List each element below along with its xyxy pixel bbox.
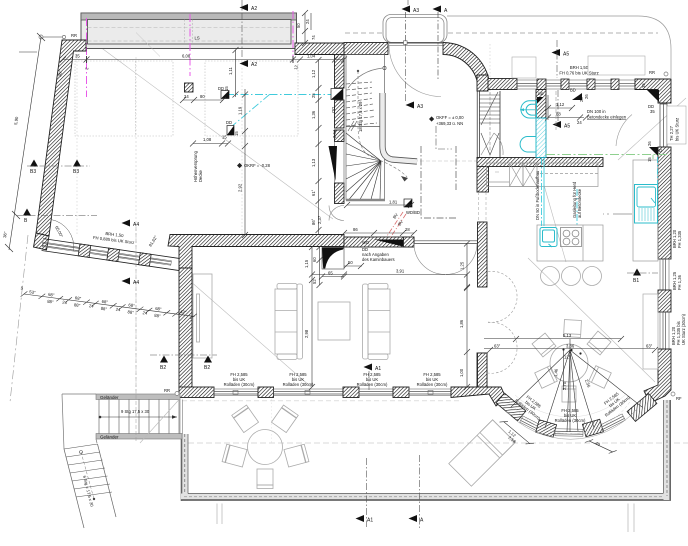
svg-text:1,13: 1,13 <box>311 158 316 167</box>
svg-text:1,86: 1,86 <box>459 319 464 328</box>
svg-text:Geländer: Geländer <box>100 395 119 400</box>
svg-text:12°: 12° <box>564 355 571 360</box>
svg-text:A4: A4 <box>133 280 139 286</box>
svg-text:2,37: 2,37 <box>317 215 322 224</box>
svg-text:A3: A3 <box>413 8 419 14</box>
svg-text:A3: A3 <box>417 104 423 110</box>
svg-text:2,70: 2,70 <box>562 381 567 390</box>
svg-text:RR: RR <box>649 70 655 75</box>
svg-text:35: 35 <box>641 83 646 88</box>
svg-text:B2: B2 <box>160 365 166 371</box>
svg-text:1,04: 1,04 <box>307 54 316 59</box>
svg-text:A5: A5 <box>563 52 569 58</box>
svg-text:BRH 1,50: BRH 1,50 <box>570 65 589 70</box>
svg-text:DN 100 in: DN 100 in <box>587 109 606 114</box>
svg-text:A2: A2 <box>251 62 257 68</box>
svg-text:1,12: 1,12 <box>311 69 316 78</box>
svg-text:28: 28 <box>405 227 410 232</box>
svg-text:18 Stg 17,5 x 29: 18 Stg 17,5 x 29 <box>358 101 363 132</box>
svg-text:80: 80 <box>200 94 205 99</box>
svg-text:OKRF = -0,28: OKRF = -0,28 <box>244 163 271 168</box>
svg-text:OKFF = ± 0,00: OKFF = ± 0,00 <box>436 115 464 120</box>
svg-text:88: 88 <box>556 112 561 117</box>
svg-text:15: 15 <box>647 157 652 162</box>
svg-text:+369,33 ü. NN: +369,33 ü. NN <box>436 121 463 126</box>
svg-text:24: 24 <box>577 120 582 125</box>
svg-text:68°: 68° <box>48 292 55 298</box>
svg-text:65: 65 <box>328 271 333 276</box>
svg-text:68°: 68° <box>128 302 135 308</box>
svg-text:88°: 88° <box>127 309 134 315</box>
svg-text:auf Betondecke: auf Betondecke <box>577 188 582 218</box>
svg-text:RF: RF <box>676 396 682 401</box>
svg-text:86: 86 <box>353 227 358 232</box>
svg-text:68°: 68° <box>75 295 82 301</box>
svg-text:50: 50 <box>296 23 301 28</box>
svg-text:1,36: 1,36 <box>311 110 316 119</box>
svg-text:1,46: 1,46 <box>553 368 559 377</box>
svg-text:bis UK Sturz: bis UK Sturz <box>675 118 680 141</box>
svg-text:DD: DD <box>656 148 662 153</box>
svg-text:1,19: 1,19 <box>238 106 243 115</box>
svg-text:B3: B3 <box>73 169 79 175</box>
svg-text:LS: LS <box>195 36 200 41</box>
svg-text:86°: 86° <box>311 218 316 225</box>
svg-text:60: 60 <box>312 257 317 262</box>
svg-text:1,08: 1,08 <box>203 137 212 142</box>
svg-text:FH 1,36: FH 1,36 <box>677 274 682 290</box>
svg-text:2,64: 2,64 <box>332 129 337 138</box>
svg-text:74: 74 <box>311 35 316 40</box>
svg-text:Rolläden (30cm): Rolläden (30cm) <box>283 382 314 387</box>
svg-text:A2: A2 <box>251 6 257 12</box>
svg-text:88°: 88° <box>154 313 161 319</box>
svg-text:25: 25 <box>311 93 316 98</box>
svg-text:88°: 88° <box>100 306 107 312</box>
svg-text:35: 35 <box>650 109 655 114</box>
svg-text:88°: 88° <box>74 302 81 308</box>
svg-text:1,12: 1,12 <box>556 102 565 107</box>
svg-text:35: 35 <box>75 54 80 59</box>
svg-text:3,91: 3,91 <box>396 269 405 274</box>
svg-text:61°: 61° <box>311 189 316 196</box>
svg-text:Betondecke einlegen: Betondecke einlegen <box>587 115 627 120</box>
svg-text:3,86: 3,86 <box>566 344 575 349</box>
svg-text:42°: 42° <box>180 309 187 315</box>
svg-text:Rolläden (30cm): Rolläden (30cm) <box>224 382 255 387</box>
svg-text:A5: A5 <box>564 124 570 130</box>
svg-text:UK Sturz (30cm): UK Sturz (30cm) <box>681 313 686 345</box>
svg-text:63°: 63° <box>494 344 501 349</box>
svg-text:15: 15 <box>222 135 227 140</box>
svg-text:24: 24 <box>184 94 189 99</box>
svg-text:26: 26 <box>647 141 652 146</box>
svg-text:WD: WD <box>362 240 369 245</box>
svg-text:2,92: 2,92 <box>238 183 243 192</box>
svg-text:1,00: 1,00 <box>459 368 464 377</box>
svg-text:FH 1,335: FH 1,335 <box>677 230 682 248</box>
svg-text:1,15: 1,15 <box>304 259 309 268</box>
svg-text:BD: BD <box>570 88 576 93</box>
svg-text:B1: B1 <box>633 278 639 284</box>
svg-text:2,98: 2,98 <box>304 329 309 338</box>
svg-text:15: 15 <box>234 131 239 136</box>
svg-text:50: 50 <box>348 260 353 265</box>
svg-text:1,11: 1,11 <box>228 66 233 75</box>
svg-text:24: 24 <box>305 19 310 24</box>
svg-text:DD: DD <box>538 92 544 96</box>
svg-text:6,08: 6,08 <box>182 54 191 59</box>
svg-text:68°: 68° <box>155 306 162 312</box>
svg-text:DD: DD <box>331 107 336 113</box>
svg-text:1,81: 1,81 <box>389 200 398 205</box>
svg-text:Rolläden (30cm): Rolläden (30cm) <box>357 382 388 387</box>
svg-text:53°: 53° <box>29 289 36 295</box>
svg-text:68°: 68° <box>101 299 108 305</box>
svg-text:Geländer: Geländer <box>100 434 119 439</box>
svg-text:63°: 63° <box>646 344 653 349</box>
svg-text:15: 15 <box>224 86 229 91</box>
svg-text:DN 50 in Fußbodenaufbau: DN 50 in Fußbodenaufbau <box>535 170 540 220</box>
svg-text:1,25: 1,25 <box>460 261 465 270</box>
svg-text:9 Stg 17,5 x 30: 9 Stg 17,5 x 30 <box>121 409 150 414</box>
svg-text:Rolläden (30cm): Rolläden (30cm) <box>417 382 448 387</box>
svg-text:des Kaminbauers: des Kaminbauers <box>362 257 395 262</box>
svg-text:5,13: 5,13 <box>563 333 572 338</box>
svg-text:B2: B2 <box>204 365 210 371</box>
svg-text:RR: RR <box>164 388 170 393</box>
svg-text:DD: DD <box>226 120 232 125</box>
svg-text:26: 26 <box>584 94 589 99</box>
svg-text:A1: A1 <box>367 518 373 524</box>
svg-text:WD/BD: WD/BD <box>406 210 420 215</box>
svg-text:RR: RR <box>71 33 77 38</box>
svg-text:36°: 36° <box>2 231 8 238</box>
svg-text:Decke: Decke <box>198 169 203 182</box>
svg-text:TH 2,27: TH 2,27 <box>669 125 674 141</box>
svg-text:88°: 88° <box>47 299 54 305</box>
svg-text:B3: B3 <box>30 169 36 175</box>
